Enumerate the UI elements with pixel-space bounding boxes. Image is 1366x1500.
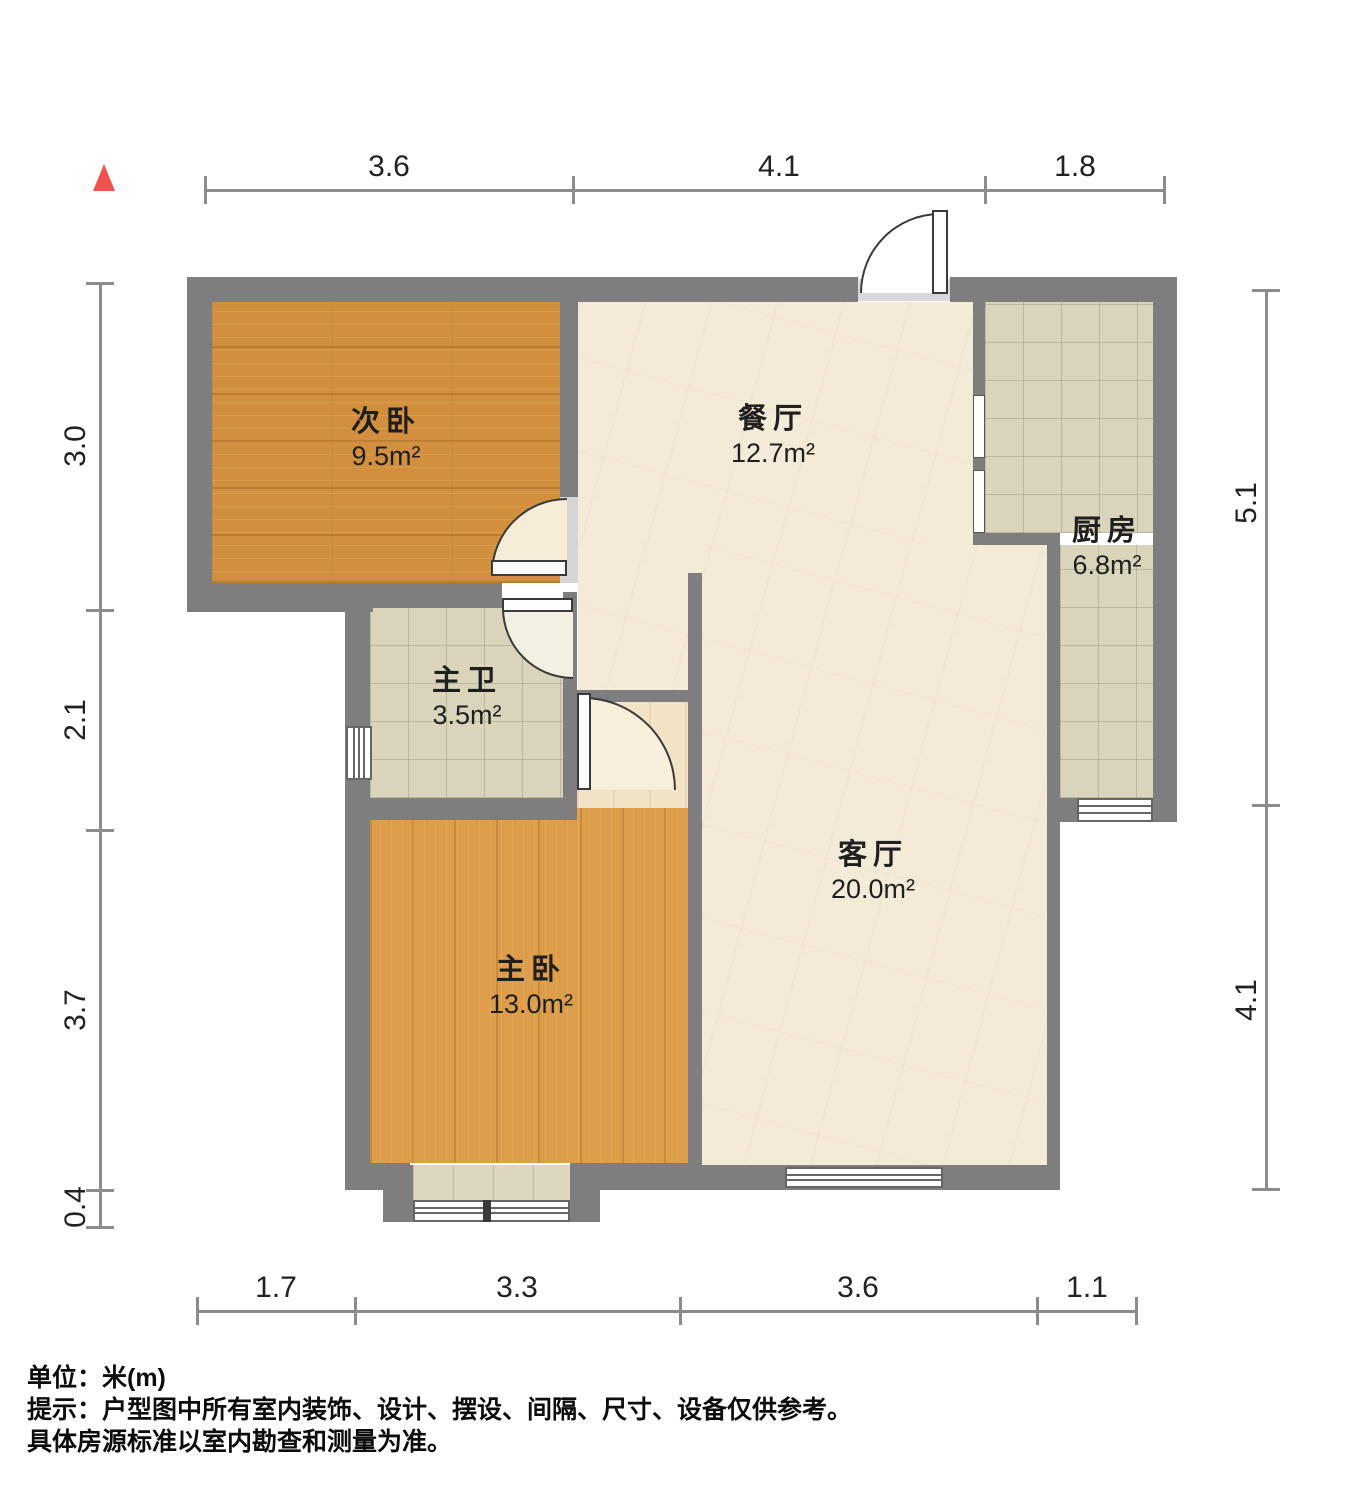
dimension-line-left bbox=[99, 283, 102, 1228]
room-name: 次卧 bbox=[351, 405, 421, 440]
wall bbox=[187, 583, 502, 608]
kitchen-opening bbox=[973, 395, 985, 458]
room-name: 主卧 bbox=[489, 953, 573, 988]
room-name: 客厅 bbox=[831, 838, 915, 873]
footer-tip-line-2: 具体房源标准以室内勘查和测量为准。 bbox=[27, 1422, 452, 1458]
dimension-line-bottom bbox=[197, 1310, 1137, 1313]
room-area: 9.5m² bbox=[351, 440, 421, 473]
wall bbox=[187, 277, 858, 302]
room-area: 20.0m² bbox=[831, 873, 915, 906]
tick bbox=[1252, 804, 1280, 807]
room-area: 6.8m² bbox=[1072, 549, 1142, 582]
room-label-dining: 餐厅 12.7m² bbox=[731, 402, 815, 470]
wall bbox=[1060, 798, 1077, 822]
kitchen-opening bbox=[973, 470, 985, 533]
window-kitchen bbox=[1077, 798, 1153, 822]
tick bbox=[679, 1297, 682, 1325]
dim-label-top: 4.1 bbox=[758, 150, 800, 184]
tick bbox=[86, 282, 114, 285]
dim-label-left: 3.0 bbox=[59, 425, 93, 467]
wall bbox=[570, 1165, 600, 1222]
entry-door-arc bbox=[860, 213, 940, 293]
north-arrow-icon bbox=[93, 164, 115, 191]
tick bbox=[204, 176, 207, 204]
dim-label-right: 4.1 bbox=[1230, 979, 1264, 1021]
room-label-secondary-bedroom: 次卧 9.5m² bbox=[351, 405, 421, 473]
room-name: 厨房 bbox=[1072, 514, 1142, 549]
window-living bbox=[785, 1167, 943, 1188]
window-mullion bbox=[483, 1200, 491, 1222]
tick bbox=[1163, 176, 1166, 204]
tick bbox=[86, 609, 114, 612]
tick bbox=[1036, 1297, 1039, 1325]
floor-bay-nook bbox=[413, 1165, 570, 1200]
dim-label-left: 0.4 bbox=[59, 1186, 93, 1228]
dim-label-left: 2.1 bbox=[59, 699, 93, 741]
room-area: 13.0m² bbox=[489, 988, 573, 1021]
window-master-bedroom-bay bbox=[413, 1200, 570, 1222]
wall bbox=[560, 302, 578, 497]
floor-plan: 次卧 9.5m² 餐厅 12.7m² 厨房 6.8m² 主卫 3.5m² 主卧 … bbox=[0, 0, 1366, 1500]
tick bbox=[1252, 1188, 1280, 1191]
room-area: 3.5m² bbox=[432, 699, 502, 732]
window-master-bath bbox=[346, 726, 372, 780]
master-bath-door-leaf bbox=[502, 598, 573, 612]
room-label-living: 客厅 20.0m² bbox=[831, 838, 915, 906]
wall bbox=[688, 573, 702, 1165]
room-name: 主卫 bbox=[432, 664, 502, 699]
room-name: 餐厅 bbox=[731, 402, 815, 437]
wall bbox=[383, 1165, 413, 1222]
wall bbox=[187, 277, 212, 612]
room-label-kitchen: 厨房 6.8m² bbox=[1072, 514, 1142, 582]
wall bbox=[345, 588, 370, 1190]
dim-label-top: 3.6 bbox=[368, 150, 410, 184]
room-area: 12.7m² bbox=[731, 437, 815, 470]
tick bbox=[1135, 1297, 1138, 1325]
dim-label-bottom: 1.7 bbox=[255, 1271, 297, 1305]
dim-label-left: 3.7 bbox=[59, 989, 93, 1031]
dimension-line-right bbox=[1265, 290, 1268, 1190]
entry-door-leaf bbox=[932, 210, 948, 294]
tick bbox=[984, 176, 987, 204]
secondary-bedroom-door-leaf bbox=[491, 560, 567, 576]
dim-label-bottom: 1.1 bbox=[1066, 1271, 1108, 1305]
room-label-master-bath: 主卫 3.5m² bbox=[432, 664, 502, 732]
dim-label-bottom: 3.6 bbox=[837, 1271, 879, 1305]
dim-label-right: 5.1 bbox=[1230, 482, 1264, 524]
master-bedroom-door-leaf bbox=[577, 693, 591, 790]
room-label-master-bedroom: 主卧 13.0m² bbox=[489, 953, 573, 1021]
wall bbox=[973, 277, 985, 395]
tick bbox=[572, 176, 575, 204]
footer-unit-line: 单位：米(m) bbox=[27, 1358, 166, 1394]
tick bbox=[1252, 289, 1280, 292]
floor-kitchen-upper bbox=[985, 295, 1153, 533]
dim-label-bottom: 3.3 bbox=[496, 1271, 538, 1305]
wall bbox=[1047, 545, 1060, 1190]
wall bbox=[973, 533, 1060, 545]
floor-kitchen-lower bbox=[1060, 545, 1153, 798]
dim-label-top: 1.8 bbox=[1054, 150, 1096, 184]
dimension-line-top bbox=[205, 189, 1165, 192]
tick bbox=[196, 1297, 199, 1325]
tick bbox=[86, 829, 114, 832]
wall bbox=[1153, 277, 1177, 822]
wall bbox=[973, 458, 985, 470]
footer-tip-line-1: 提示：户型图中所有室内装饰、设计、摆设、间隔、尺寸、设备仅供参考。 bbox=[27, 1390, 852, 1426]
tick bbox=[354, 1297, 357, 1325]
wall bbox=[345, 798, 577, 820]
